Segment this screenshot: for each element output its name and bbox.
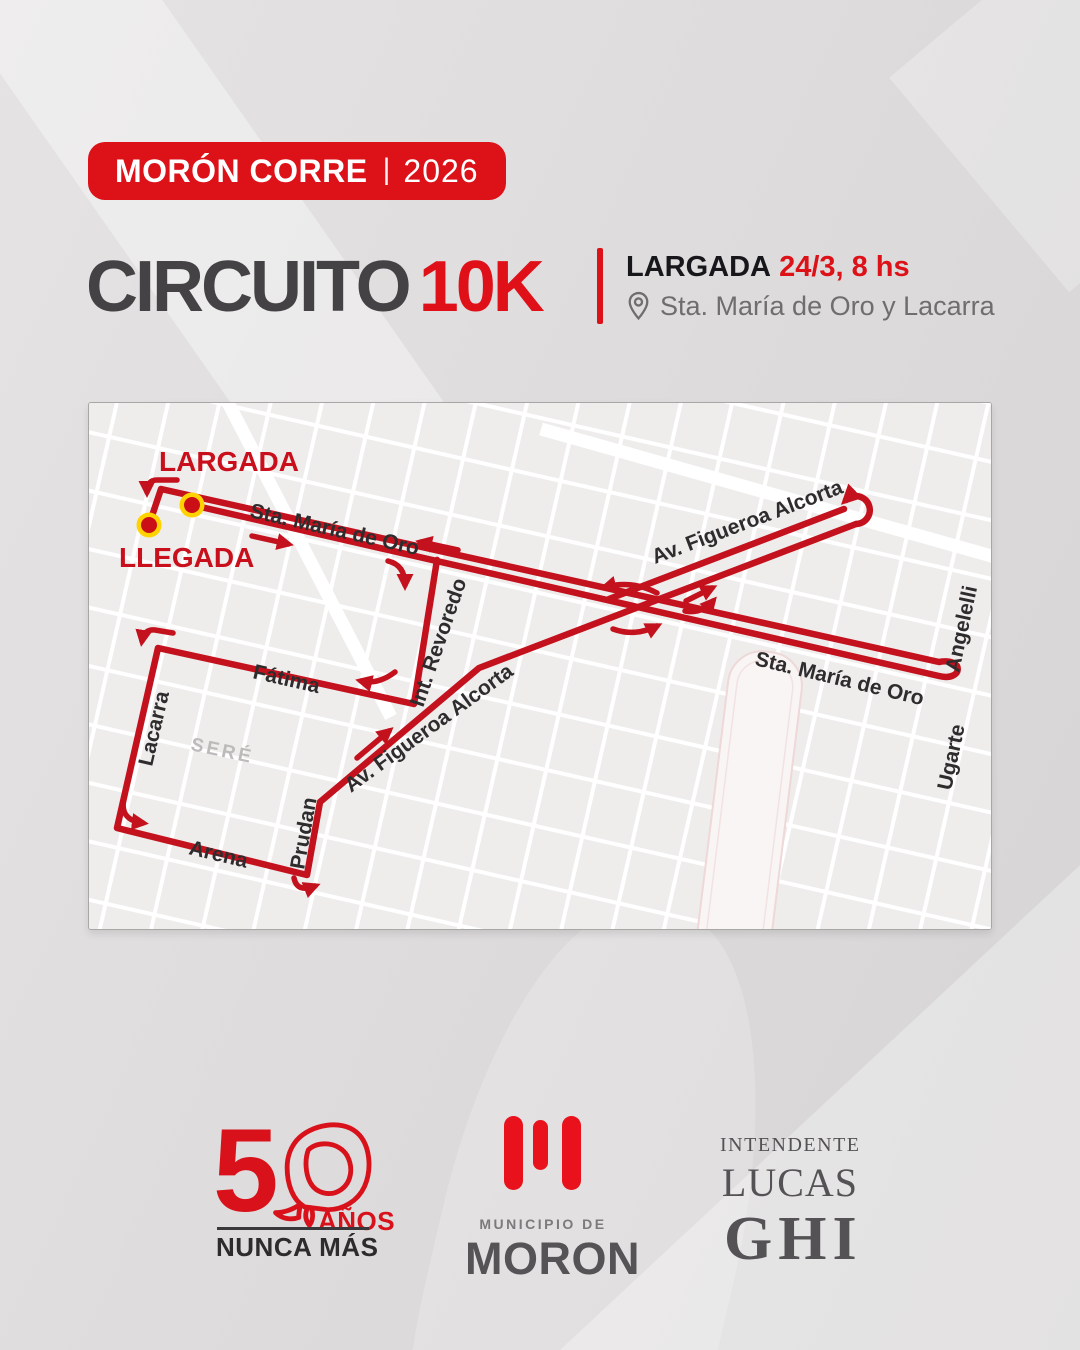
background-sheen — [889, 0, 1080, 292]
mayor-signature: INTENDENTE LUCAS GHI — [720, 1134, 860, 1275]
map-start-label: LARGADA — [159, 446, 299, 477]
start-marker — [180, 493, 205, 518]
event-name: MORÓN CORRE — [115, 153, 368, 190]
poster: MORÓN CORRE | 2026 CIRCUITO10K LARGADA 2… — [0, 0, 1080, 1350]
start-info: LARGADA 24/3, 8 hs Sta. María de Oro y L… — [626, 251, 995, 322]
anniversary-logo: 5 AÑOS NUNCA MÁS — [213, 1118, 381, 1258]
start-date: 24/3, 8 hs — [779, 251, 910, 283]
event-year: 2026 — [403, 153, 478, 190]
anniversary-slogan: NUNCA MÁS — [216, 1232, 378, 1263]
municipality-logo: MUNICIPIO DE MORON — [465, 1116, 621, 1285]
municipality-line1: MUNICIPIO DE — [465, 1216, 621, 1232]
start-address: Sta. María de Oro y Lacarra — [660, 291, 995, 322]
mayor-last-name: GHI — [724, 1204, 860, 1275]
start-datetime: LARGADA 24/3, 8 hs — [626, 251, 995, 284]
event-badge: MORÓN CORRE | 2026 — [88, 142, 506, 200]
anniversary-divider — [217, 1227, 369, 1230]
mayor-role: INTENDENTE — [720, 1134, 860, 1157]
map-finish-label: LLEGADA — [119, 542, 254, 573]
title-main: CIRCUITO — [86, 247, 409, 327]
title-distance: 10K — [419, 247, 542, 327]
moron-m-icon — [504, 1116, 582, 1191]
route-map-svg: LARGADA LLEGADA Sta. María de Oro Av. Fi… — [89, 403, 991, 929]
route-map: LARGADA LLEGADA Sta. María de Oro Av. Fi… — [88, 402, 992, 930]
location-pin-icon — [626, 291, 651, 322]
start-label: LARGADA — [626, 251, 771, 283]
mayor-first-name: LUCAS — [720, 1159, 860, 1206]
page-title: CIRCUITO10K — [86, 246, 542, 328]
start-location: Sta. María de Oro y Lacarra — [626, 291, 995, 322]
badge-separator: | — [383, 153, 391, 187]
divider-bar — [597, 248, 603, 324]
municipality-name: MORON — [465, 1233, 621, 1285]
finish-marker — [137, 513, 162, 538]
